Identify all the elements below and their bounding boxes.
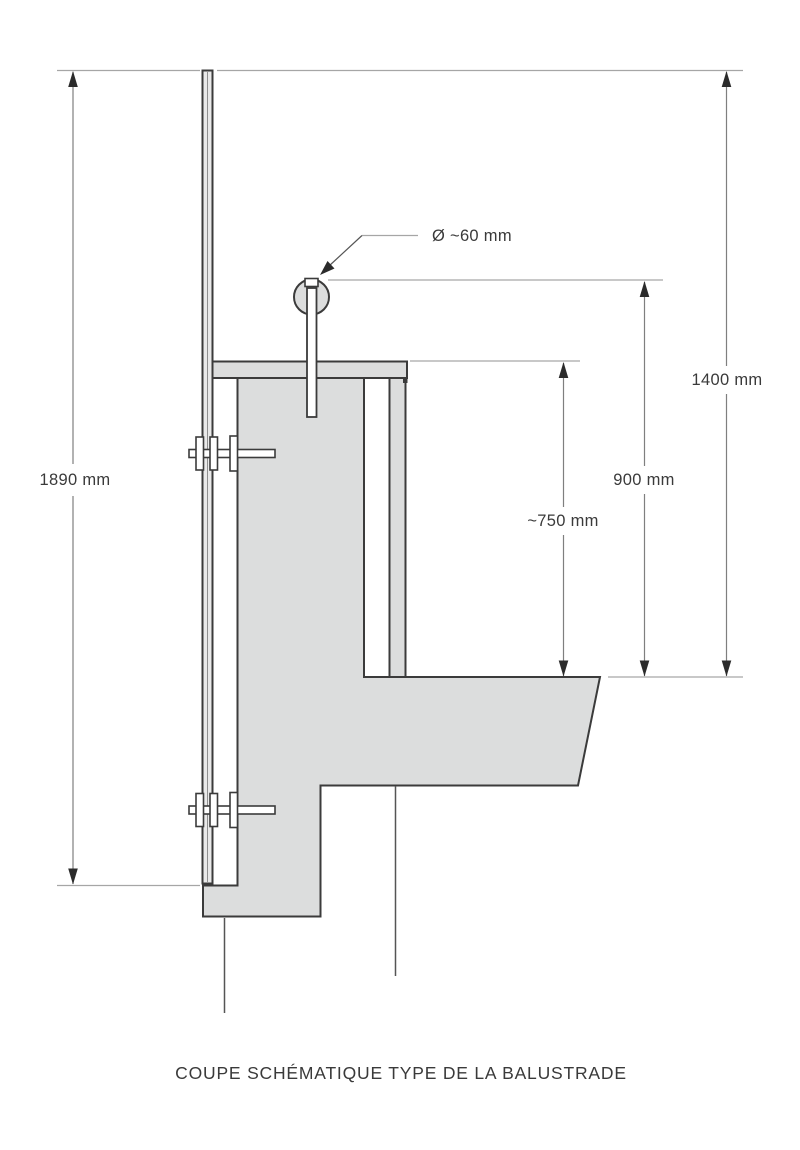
dimension-overall-height: 1890 mm (40, 71, 111, 885)
handrail-notch (305, 279, 318, 287)
bolt-washer-plate (230, 436, 238, 471)
dimension-floor-to-handrail-top-label: 900 mm (613, 471, 674, 489)
arrow-down-icon (640, 661, 650, 677)
handrail-post (307, 288, 317, 417)
balustrade-section-drawing: 1890 mm 1400 mm 900 mm ~750 mm (0, 0, 800, 1150)
caption: COUPE SCHÉMATIQUE TYPE DE LA BALUSTRADE (175, 1063, 627, 1083)
dimension-floor-to-coping-top: ~750 mm (527, 362, 598, 677)
drawing-page: 1890 mm 1400 mm 900 mm ~750 mm (0, 0, 800, 1150)
handrail-diameter-label: Ø ~60 mm (432, 227, 512, 245)
glass-panel (203, 71, 213, 884)
arrow-up-icon (722, 71, 732, 87)
bolt-washer-plate (230, 793, 238, 828)
wall-facing-strip (390, 378, 406, 677)
dimension-overall-height-label: 1890 mm (40, 471, 111, 489)
arrow-down-icon (559, 661, 569, 677)
dimension-floor-to-coping-top-label: ~750 mm (527, 512, 598, 530)
dimension-handrail-top-height: 1400 mm (692, 71, 763, 677)
arrow-down-icon (68, 869, 78, 885)
bolt-clamp-plate-left (196, 437, 204, 470)
arrow-up-icon (68, 71, 78, 87)
bolt-clamp-plate-right (210, 794, 218, 827)
arrow-down-icon (722, 661, 732, 677)
bolt-clamp-plate-left (196, 794, 204, 827)
arrow-up-icon (640, 281, 650, 297)
handrail-diameter-callout: Ø ~60 mm (320, 227, 512, 275)
dimension-floor-to-handrail-top: 900 mm (613, 281, 674, 677)
dimension-handrail-top-height-label: 1400 mm (692, 371, 763, 389)
arrow-up-icon (559, 362, 569, 378)
bolt-clamp-plate-right (210, 437, 218, 470)
leader-diagonal-line (329, 236, 362, 267)
